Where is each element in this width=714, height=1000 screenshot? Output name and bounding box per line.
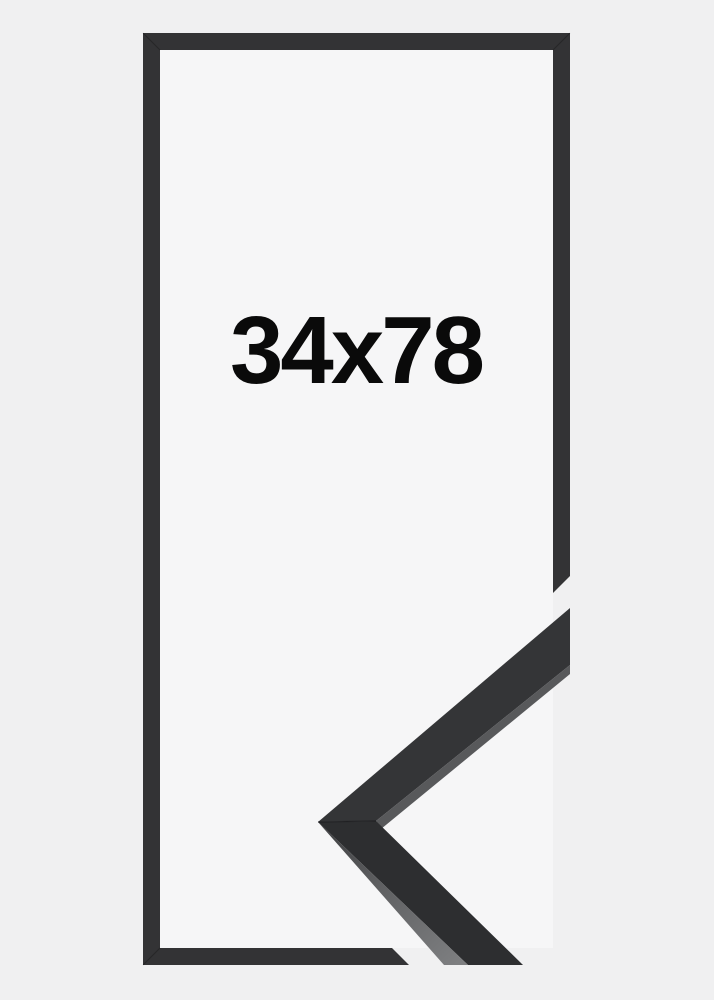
- product-image-picture-frame: 34x78: [0, 0, 714, 1000]
- frame-illustration: 34x78: [0, 0, 714, 1000]
- size-label: 34x78: [230, 297, 483, 404]
